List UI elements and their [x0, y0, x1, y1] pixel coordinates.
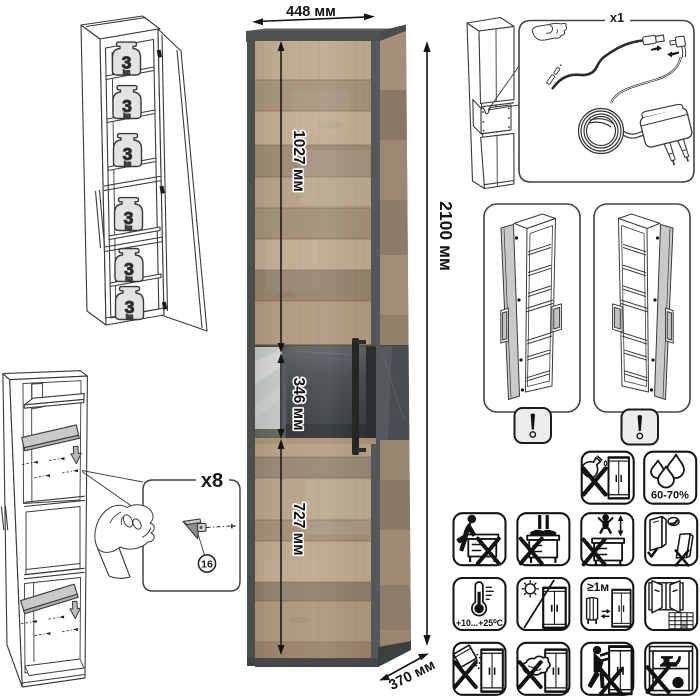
svg-text:346 мм: 346 мм: [290, 377, 307, 430]
svg-text:1027 мм: 1027 мм: [290, 130, 307, 192]
svg-text:60-70%: 60-70%: [651, 490, 689, 502]
svg-text:2100 мм: 2100 мм: [436, 201, 456, 271]
svg-text:25: 25: [681, 624, 687, 629]
svg-text:+10...+25⁰C: +10...+25⁰C: [456, 618, 504, 628]
svg-text:x8: x8: [201, 470, 223, 492]
svg-text:448 мм: 448 мм: [286, 4, 336, 20]
svg-text:727 мм: 727 мм: [290, 502, 307, 555]
svg-text:≥1м: ≥1м: [587, 580, 609, 594]
svg-text:16: 16: [201, 559, 213, 571]
svg-text:x1: x1: [610, 10, 624, 25]
